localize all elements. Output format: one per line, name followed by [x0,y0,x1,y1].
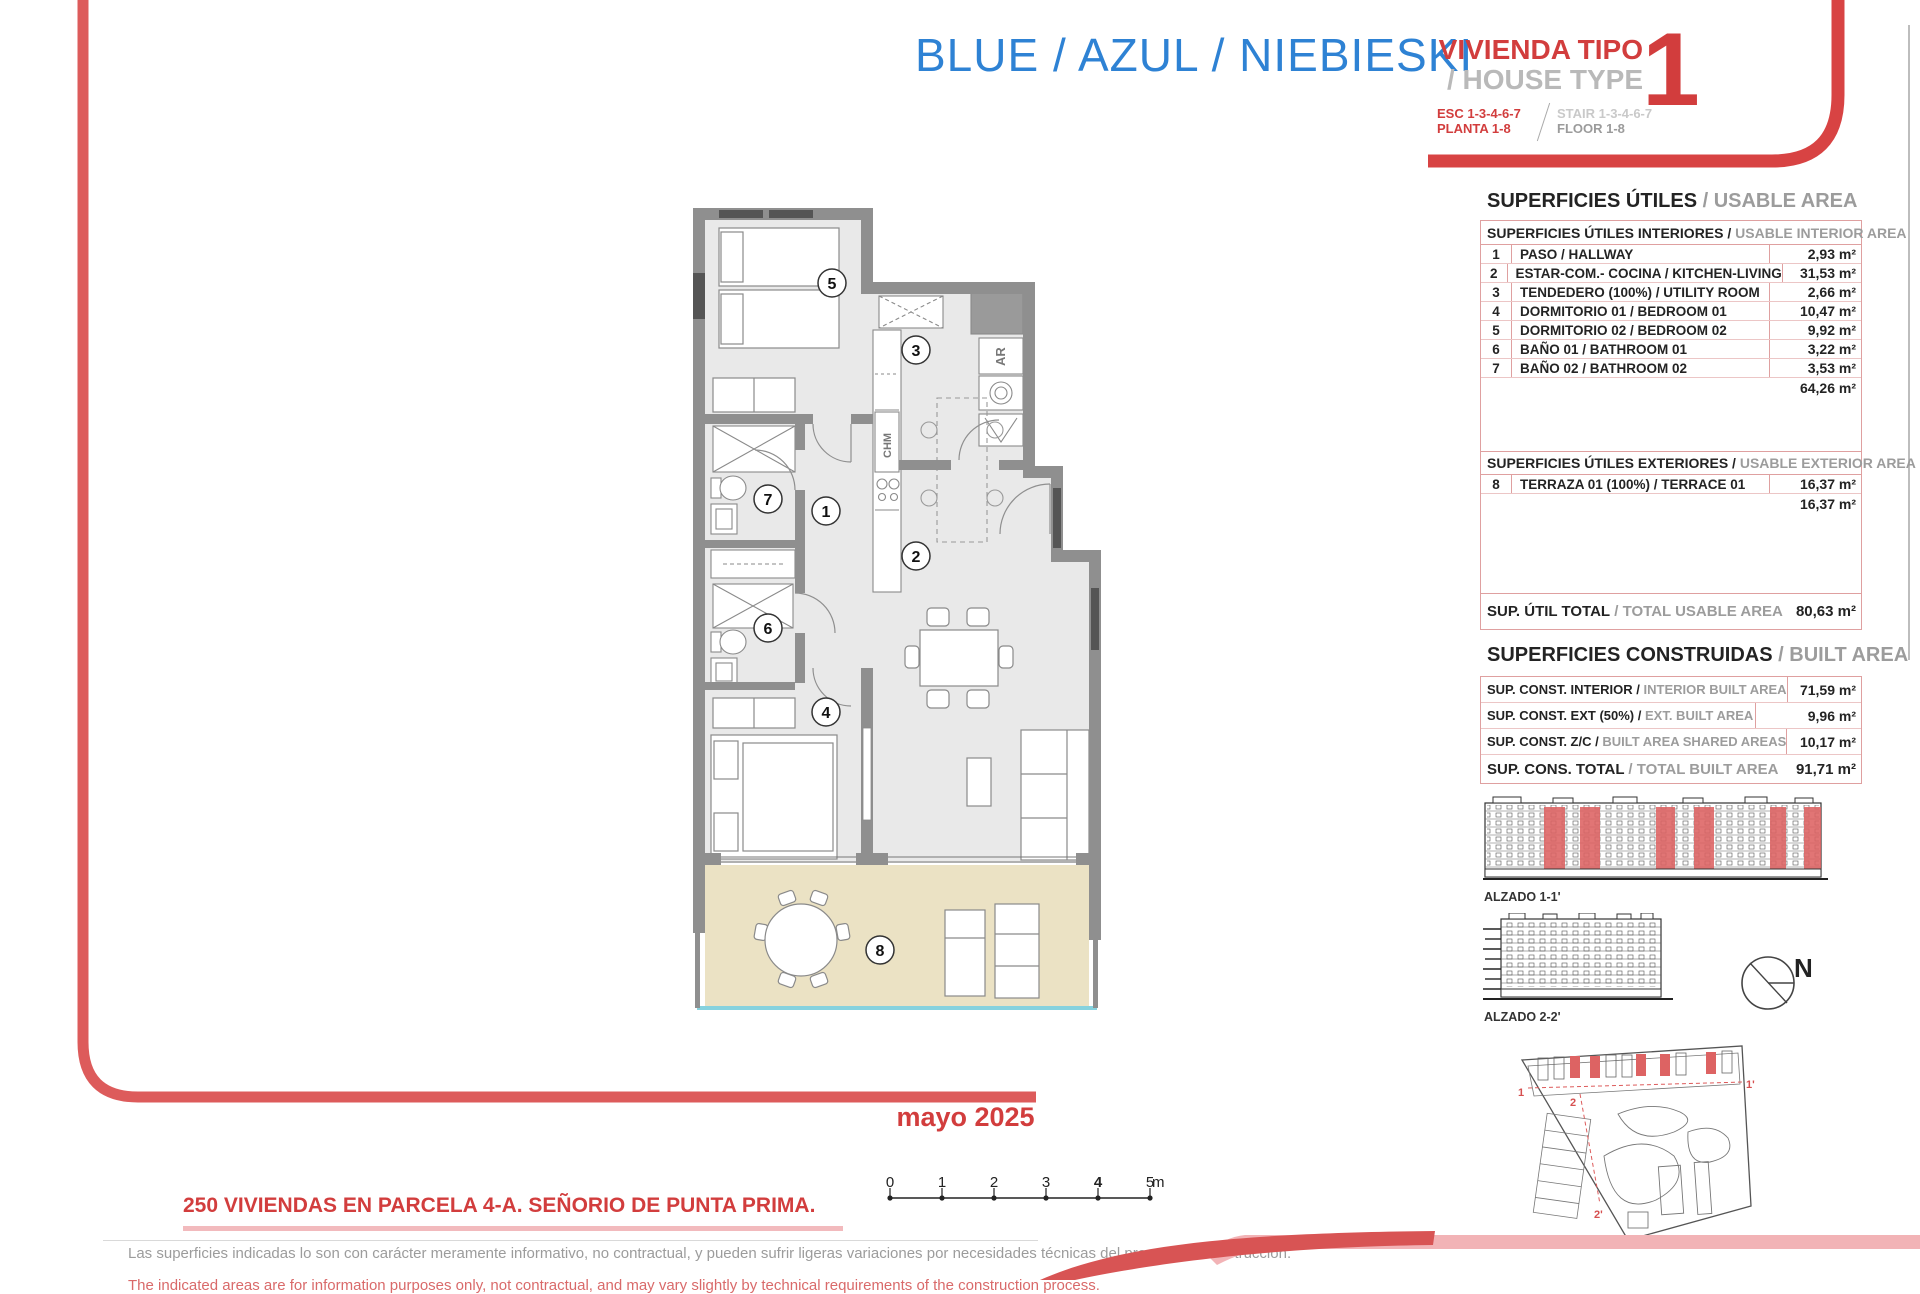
utility-ar-label: AR [993,347,1008,366]
svg-text:2: 2 [912,549,921,566]
esc-line: ESC 1-3-4-6-7 [1437,106,1521,121]
svg-text:3: 3 [912,343,921,360]
exterior-header-es: SUPERFICIES ÚTILES EXTERIORES / [1487,455,1736,471]
usable-area-title: SUPERFICIES ÚTILES / USABLE AREA [1487,190,1857,213]
built-total-row: SUP. CONS. TOTAL / TOTAL BUILT AREA91,71… [1481,755,1861,784]
usable-area-table: SUPERFICIES ÚTILES INTERIORES / USABLE I… [1480,220,1862,630]
site-marker-2: 2 [1570,1097,1576,1109]
room-number-6: 6 [754,614,782,642]
table-row: 2ESTAR-COM.- COCINA / KITCHEN-LIVING31,5… [1481,264,1861,283]
table-row: 6BAÑO 01 / BATHROOM 013,22 m² [1481,340,1861,359]
built-area-title: SUPERFICIES CONSTRUIDAS / BUILT AREA [1487,644,1908,667]
page-edge-line [1908,25,1910,660]
pocket-door [863,728,871,820]
scale-tick-3: 3 [1036,1174,1056,1191]
usable-area-title-en: / USABLE AREA [1703,190,1858,212]
table-row: 4DORMITORIO 01 / BEDROOM 0110,47 m² [1481,302,1861,321]
built-area-title-es: SUPERFICIES CONSTRUIDAS [1487,644,1773,666]
room-number-4: 4 [812,698,840,726]
elevation-2-label: ALZADO 2-2' [1484,1010,1561,1024]
north-label: N [1794,953,1813,984]
svg-text:6: 6 [764,621,773,638]
scale-tick-4: 4 [1088,1174,1108,1191]
table-row: SUP. CONST. INTERIOR / INTERIOR BUILT AR… [1481,677,1861,703]
kitchen-chm-label: CHM [882,433,894,458]
stair-line: STAIR 1-3-4-6-7 [1557,106,1652,121]
room-number-7: 7 [754,485,782,513]
built-area-table: SUP. CONST. INTERIOR / INTERIOR BUILT AR… [1480,676,1862,784]
scale-unit: m [1152,1174,1165,1191]
project-name-underline [183,1226,843,1231]
project-name: 250 VIVIENDAS EN PARCELA 4-A. SEÑORIO DE… [183,1194,815,1218]
usable-total-row: SUP. ÚTIL TOTAL / TOTAL USABLE AREA 80,6… [1481,593,1861,629]
site-marker-1p: 1' [1746,1079,1755,1091]
bedroom1-bed [711,735,837,859]
plan-sheet: { "header": { "project_title": "BLUE / A… [0,0,1920,1280]
elevation-2-drawing [1483,913,1673,1007]
stair-floor-es: ESC 1-3-4-6-7 PLANTA 1-8 [1437,106,1521,136]
room-number-1: 1 [812,497,840,525]
kitchen-counter [873,330,901,592]
table-row: 1PASO / HALLWAY2,93 m² [1481,245,1861,264]
terrace-glass-edge [697,1006,1097,1010]
exterior-section: SUPERFICIES ÚTILES EXTERIORES / USABLE E… [1481,451,1861,514]
scale-tick-2: 2 [984,1174,1004,1191]
elevation-1-drawing [1483,795,1828,887]
svg-text:4: 4 [822,705,831,722]
bedroom1-wardrobe [713,698,795,728]
room-number-3: 3 [902,336,930,364]
usable-total-value: 80,63 m² [1796,603,1861,620]
interior-header-en: USABLE INTERIOR AREA [1735,225,1906,241]
interior-header: SUPERFICIES ÚTILES INTERIORES / USABLE I… [1481,221,1861,245]
exterior-header-en: USABLE EXTERIOR AREA [1740,455,1916,471]
house-type-title-es: VIVIENDA TIPO [1428,34,1643,66]
room-number-5: 5 [818,269,846,297]
disclaimer-divider [103,1240,1038,1241]
stair-floor-en: STAIR 1-3-4-6-7 FLOOR 1-8 [1557,106,1652,136]
svg-text:1: 1 [822,504,831,521]
elevation-1-label: ALZADO 1-1' [1484,890,1561,904]
bottom-swoosh-decoration [1035,1225,1920,1280]
table-row: SUP. CONST. EXT (50%) / EXT. BUILT AREA9… [1481,703,1861,729]
scale-bar [875,1186,1175,1210]
date-label: mayo 2025 [878,1102,1053,1133]
site-marker-2p: 2' [1594,1209,1603,1221]
house-type-title-en: / HOUSE TYPE [1428,64,1643,96]
site-marker-1: 1 [1518,1087,1524,1099]
room-number-8: 8 [866,936,894,964]
table-row: 3TENDEDERO (100%) / UTILITY ROOM2,66 m² [1481,283,1861,302]
svg-text:7: 7 [764,492,773,509]
floor-plan: CHM AR [683,198,1113,1028]
table-row: SUP. CONST. Z/C / BUILT AREA SHARED AREA… [1481,729,1861,755]
usable-total-label-es: SUP. ÚTIL TOTAL [1487,603,1610,620]
svg-text:8: 8 [876,943,885,960]
site-plan: 1 1' 2 2' [1508,1036,1760,1248]
usable-area-title-es: SUPERFICIES ÚTILES [1487,190,1697,212]
scale-tick-1: 1 [932,1174,952,1191]
table-row: 5DORMITORIO 02 / BEDROOM 029,92 m² [1481,321,1861,340]
scale-tick-0: 0 [880,1174,900,1191]
room-number-2: 2 [902,542,930,570]
built-area-title-en: / BUILT AREA [1778,644,1908,666]
exterior-header: SUPERFICIES ÚTILES EXTERIORES / USABLE E… [1481,451,1861,475]
page-title: BLUE / AZUL / NIEBIESKI [915,28,1473,82]
table-row: 8TERRAZA 01 (100%) / TERRACE 0116,37 m² [1481,475,1861,494]
exterior-subtotal: 16,37 m² [1481,494,1861,514]
floor-line: FLOOR 1-8 [1557,121,1652,136]
svg-text:5: 5 [828,276,837,293]
usable-total-label-en: / TOTAL USABLE AREA [1614,603,1783,620]
table-row: 7BAÑO 02 / BATHROOM 023,53 m² [1481,359,1861,378]
interior-subtotal: 64,26 m² [1481,378,1861,398]
interior-header-es: SUPERFICIES ÚTILES INTERIORES / [1487,225,1731,241]
planta-line: PLANTA 1-8 [1437,121,1521,136]
